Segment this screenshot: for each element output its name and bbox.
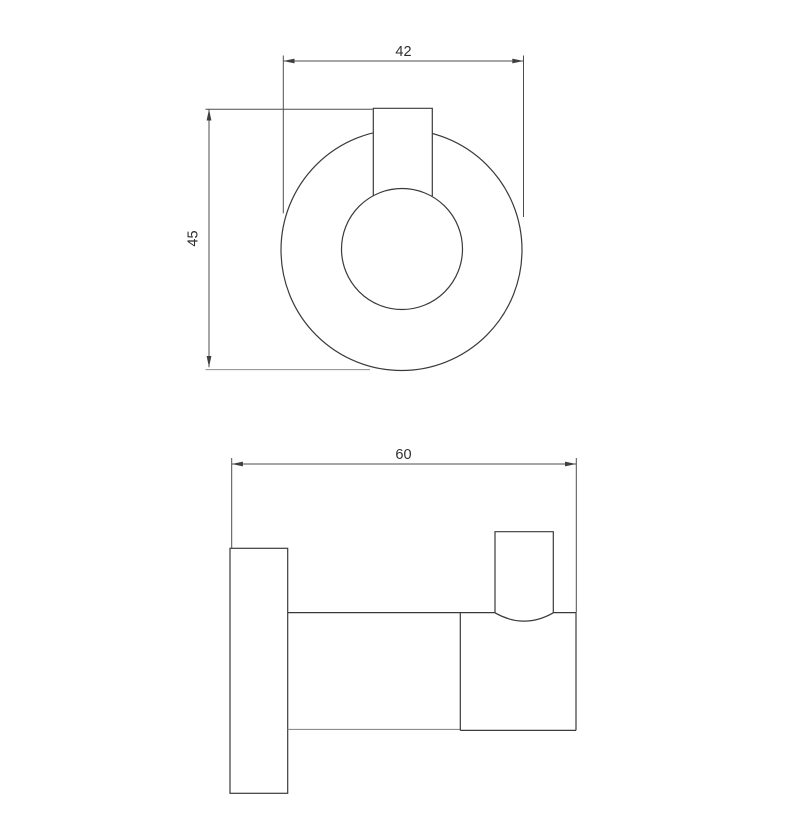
dim-60-arrow-left-icon <box>232 462 243 467</box>
dim-45-arrow-top-icon <box>207 109 212 120</box>
dimension-60: 60 <box>232 447 577 613</box>
dim-45-arrow-bottom-icon <box>207 356 212 367</box>
hook-fillet-curve <box>495 613 553 621</box>
dim-42-label: 42 <box>395 44 411 60</box>
dimension-45: 45 <box>186 109 373 369</box>
drawing-page: 42 45 <box>0 0 807 824</box>
side-view <box>230 532 576 794</box>
technical-drawing-canvas: 42 45 <box>0 0 807 824</box>
hook-post <box>495 532 553 613</box>
dim-42-arrow-right-icon <box>512 59 523 64</box>
inner-circle <box>342 189 463 310</box>
dim-60-arrow-right-icon <box>565 462 576 467</box>
dim-45-label: 45 <box>186 230 202 246</box>
mount-tab <box>373 108 432 196</box>
wall-plate <box>230 548 288 793</box>
dim-60-label: 60 <box>395 447 411 463</box>
dim-42-arrow-left-icon <box>283 59 294 64</box>
top-view <box>281 108 522 370</box>
